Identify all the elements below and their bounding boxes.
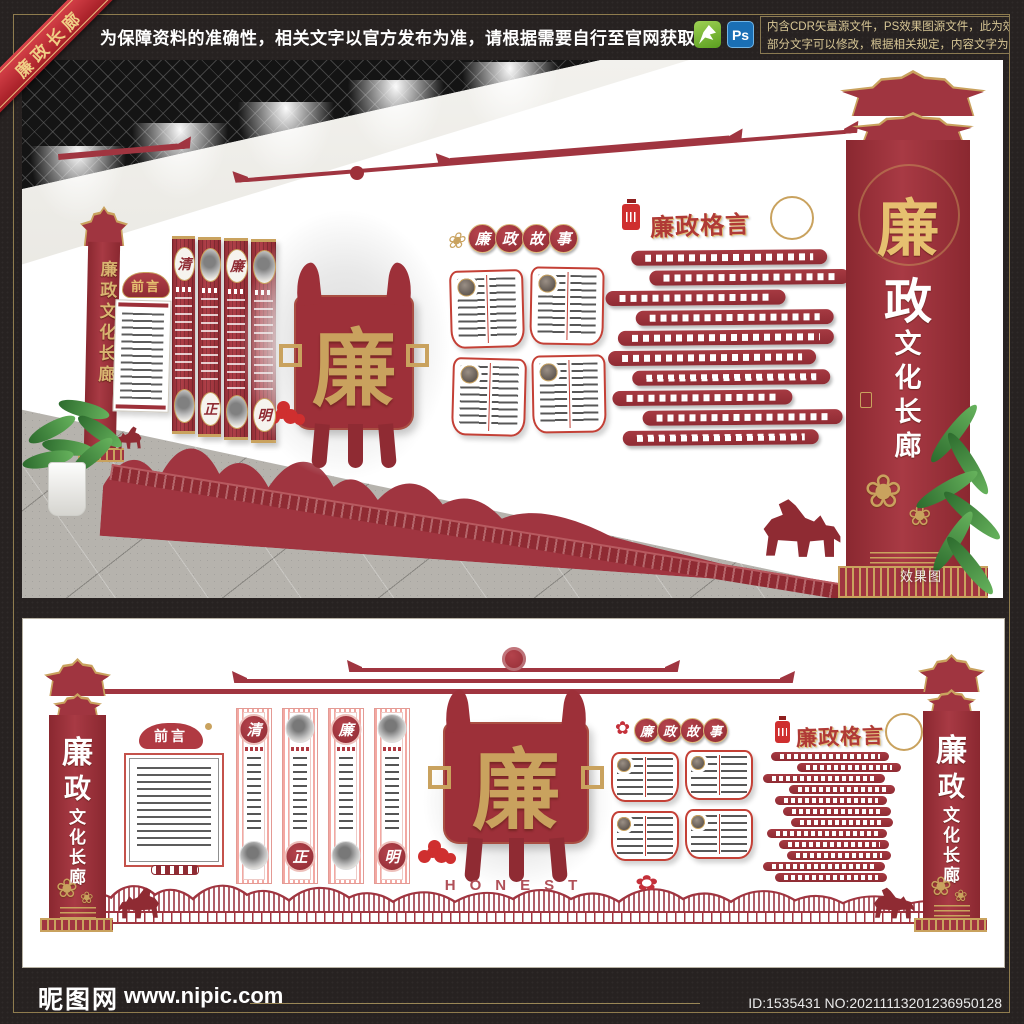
maxim-bar	[608, 349, 816, 366]
gold-dot	[205, 723, 212, 730]
ink-painting	[253, 250, 276, 284]
story-book	[449, 269, 525, 349]
maxim-bar	[763, 774, 885, 783]
note-line-1: 内含CDR矢量源文件，PS效果图源文件，此为效果	[767, 18, 1003, 36]
maxim-bar	[789, 785, 895, 794]
ring-ornament	[885, 713, 923, 751]
portrait-photo	[691, 756, 705, 770]
cloud-ornament	[276, 408, 287, 419]
lian-emblem: 廉	[294, 295, 414, 430]
ink-painting	[200, 248, 221, 282]
maxim-bar	[767, 829, 887, 838]
flat-lian-emblem: 廉	[443, 722, 589, 844]
emblem-character: 廉	[443, 722, 589, 844]
lantern-icon	[775, 721, 790, 743]
maxim-bar	[775, 796, 887, 805]
maxim-header: 廉政格言	[649, 204, 750, 242]
ink-painting	[332, 841, 361, 870]
portrait-photo	[457, 278, 475, 296]
header-notice: 为保障资料的准确性，相关文字以官方发布为准，请根据需要自行至官网获取！	[100, 24, 713, 49]
flat-scroll-qing: 清	[236, 708, 272, 884]
image-id: ID:1535431 NO:20211113201236950128	[700, 995, 1002, 1011]
flat-foreword-header: 前言	[139, 723, 203, 749]
beam-ornament	[350, 166, 364, 180]
portrait-photo	[460, 365, 478, 383]
maxim-bar	[787, 851, 891, 860]
ink-painting	[226, 395, 248, 429]
portrait-photo	[691, 815, 705, 829]
flat-right-pillar-cap2	[927, 689, 976, 713]
maxim-bar	[618, 329, 834, 346]
ink-painting	[174, 389, 195, 423]
render-watermark: 效果图	[900, 566, 942, 585]
maxim-bar	[649, 269, 849, 286]
flat-left-pillar-cap	[44, 658, 111, 696]
maxim-bar	[771, 752, 889, 761]
maxim-bar	[643, 409, 843, 426]
coreldraw-icon	[694, 21, 721, 48]
gold-lotus: ❀ ❀	[56, 875, 100, 919]
hanging-scroll-qing: 清	[172, 236, 195, 434]
potted-plant	[22, 396, 172, 536]
story-header: 廉 政 故 事	[470, 224, 578, 253]
source-file-note: 内含CDR矢量源文件，PS效果图源文件，此为效果 部分文字可以修改，根据相关规定…	[760, 16, 1010, 54]
story-book	[611, 811, 679, 861]
foreword-header: 前言	[122, 272, 170, 298]
red-lotus: ✿	[635, 873, 658, 894]
footer-divider	[250, 1003, 700, 1004]
maxim-bar	[797, 763, 901, 772]
hanging-scroll-zheng: 正	[198, 237, 221, 437]
flat-view: ✿ 廉 政 文 化 长 廊 ❀ ❀ 前言 清	[22, 618, 1005, 968]
story-book	[685, 809, 753, 859]
right-pillar-cap	[840, 70, 986, 116]
dot-ornament	[151, 865, 199, 875]
maxim-bar	[632, 369, 830, 386]
render-view: 廉政文化长廊 前言 清 正 廉 明	[22, 60, 1003, 598]
maxim-bar	[783, 807, 891, 816]
flat-scroll-ming: 明	[374, 708, 410, 884]
maxim-bar	[636, 309, 834, 326]
flat-left-pillar-base	[40, 918, 113, 932]
portrait-photo	[538, 274, 556, 292]
maxim-bar	[623, 429, 819, 446]
flat-foreword-panel	[124, 753, 224, 867]
maxim-bars	[605, 249, 857, 451]
maxim-bar	[612, 389, 792, 406]
flat-scroll-zheng: 正	[282, 708, 318, 884]
flat-story-header: 廉 政 故 事	[636, 718, 728, 743]
site-logo: 昵图网	[38, 980, 119, 1016]
lotus-vase-icon: ❀	[446, 228, 464, 254]
eave-line	[246, 679, 781, 683]
downlight-glow	[460, 62, 560, 142]
maxim-bar	[775, 873, 887, 882]
portrait-photo	[617, 817, 631, 831]
flat-scroll-lian: 廉	[328, 708, 364, 884]
cloud-ornament	[427, 847, 438, 858]
portrait-photo	[617, 758, 631, 772]
portrait-photo	[539, 363, 557, 381]
note-line-2: 部分文字可以修改，根据相关规定，内容文字为色块！	[767, 36, 1003, 54]
base-frieze	[63, 911, 963, 924]
flat-right-pillar: 廉 政 文 化 长 廊 ❀ ❀	[923, 711, 980, 918]
flat-maxim-header: 廉政格言	[796, 719, 885, 752]
ring-ornament	[770, 196, 814, 240]
downlight-glow	[130, 123, 230, 203]
maxim-bar	[631, 249, 827, 266]
photoshop-icon: Ps	[727, 21, 754, 48]
story-book	[685, 750, 753, 800]
downlight-glow	[346, 80, 446, 160]
maxim-bar	[791, 818, 893, 827]
story-book	[529, 266, 604, 345]
story-book	[531, 354, 606, 433]
story-book	[611, 752, 679, 802]
honest-label: HONEST	[425, 877, 611, 894]
seal-stamp	[860, 392, 872, 408]
maxim-bar	[779, 840, 889, 849]
flat-maxim-bars	[763, 752, 903, 884]
left-pillar-cap	[80, 206, 128, 246]
red-lotus-icon: ✿	[615, 719, 630, 737]
flat-left-pillar: 廉 政 文 化 长 廊 ❀ ❀	[49, 715, 106, 918]
site-url: www.nipic.com	[124, 983, 283, 1009]
downlight-glow	[236, 102, 336, 182]
flat-left-pillar-cap2	[53, 693, 102, 717]
qilin-statue	[762, 498, 842, 560]
ink-painting	[378, 714, 407, 743]
ink-painting	[286, 714, 315, 743]
eave-medallion	[502, 647, 526, 671]
flat-right-pillar-cap	[918, 654, 985, 692]
flat-right-pillar-base	[914, 918, 987, 932]
lantern-icon	[622, 204, 640, 230]
plant-pot	[48, 462, 86, 516]
eave-line	[89, 689, 939, 694]
story-book	[451, 357, 527, 437]
gold-lotus: ❀ ❀	[930, 873, 974, 917]
maxim-bar	[605, 290, 785, 307]
poster: 廉政长廊 为保障资料的准确性，相关文字以官方发布为准，请根据需要自行至官网获取！…	[0, 0, 1024, 1024]
ink-painting	[240, 841, 269, 870]
maxim-bar	[763, 862, 885, 871]
emblem-character: 廉	[294, 295, 414, 430]
